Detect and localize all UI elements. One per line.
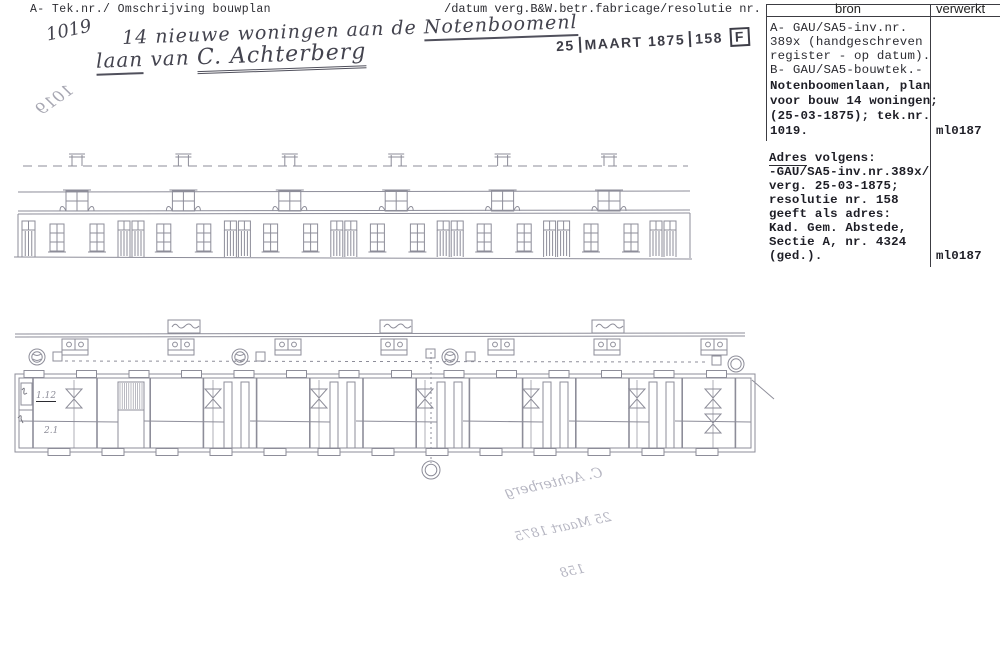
bron-line: A- GAU/SA5-inv.nr. (770, 21, 907, 35)
signature-name: C. Achterberg (459, 456, 648, 510)
elevation-drawing (14, 154, 692, 259)
bron-line: Notenboomenlaan, plan (770, 79, 930, 93)
stamp-letter-box: F (729, 27, 750, 47)
bron-line: B- GAU/SA5-bouwtek.- (770, 63, 923, 77)
table-left-border (766, 4, 767, 141)
street-name-part2: laan (96, 47, 144, 76)
scanned-archive-card: A- Tek.nr./ Omschrijving bouwplan /datum… (0, 0, 1000, 649)
bron-line: verg. 25-03-1875; (769, 179, 899, 193)
bron-line: geeft als adres: (769, 207, 891, 221)
bron-line: (25-03-1875); tek.nr. (770, 109, 930, 123)
bron-line: Kad. Gem. Abstede, (769, 221, 906, 235)
column-header-verwerkt: verwerkt (936, 1, 985, 16)
description-connector: van (143, 45, 198, 71)
plan-pencil-note: 1.12 (36, 391, 56, 402)
verwerkt-code: ml0187 (936, 124, 982, 138)
bron-line: register - op datum). (770, 49, 930, 63)
bron-line: (ged.). (769, 249, 822, 263)
signature-number: 158 (478, 544, 667, 598)
stamp-month-year: MAART 1875 (578, 31, 691, 53)
adres-underlined: Adres (769, 151, 807, 166)
bron-line: 1019. (770, 124, 808, 138)
signature-date: 25 Maart 1875 (469, 500, 658, 554)
bron-line: voor bouw 14 woningen; (770, 94, 938, 108)
bron-line: Sectie A, nr. 4324 (769, 235, 906, 249)
plan-pencil-note: 2.1 (44, 426, 58, 436)
bron-line: 389x (handgeschreven (770, 35, 923, 49)
bron-line: Adres volgens: (769, 151, 876, 165)
floorplan-drawing (15, 320, 774, 479)
adres-rest: volgens: (807, 151, 876, 165)
header-left-label: A- Tek.nr./ Omschrijving bouwplan (30, 3, 271, 16)
verwerkt-code: ml0187 (936, 249, 982, 263)
bron-line: resolutie nr. 158 (769, 193, 899, 207)
bron-line: -GAU/SA5-inv.nr.389x/ (769, 165, 929, 179)
table-column-divider (930, 4, 931, 267)
applicant-name: C. Achterberg (197, 39, 367, 74)
stamp-day: 25 (556, 37, 575, 54)
column-header-bron: bron (766, 1, 930, 16)
table-header-underline (766, 16, 1000, 17)
stamp-resolutie-nr: 158 (695, 29, 724, 46)
